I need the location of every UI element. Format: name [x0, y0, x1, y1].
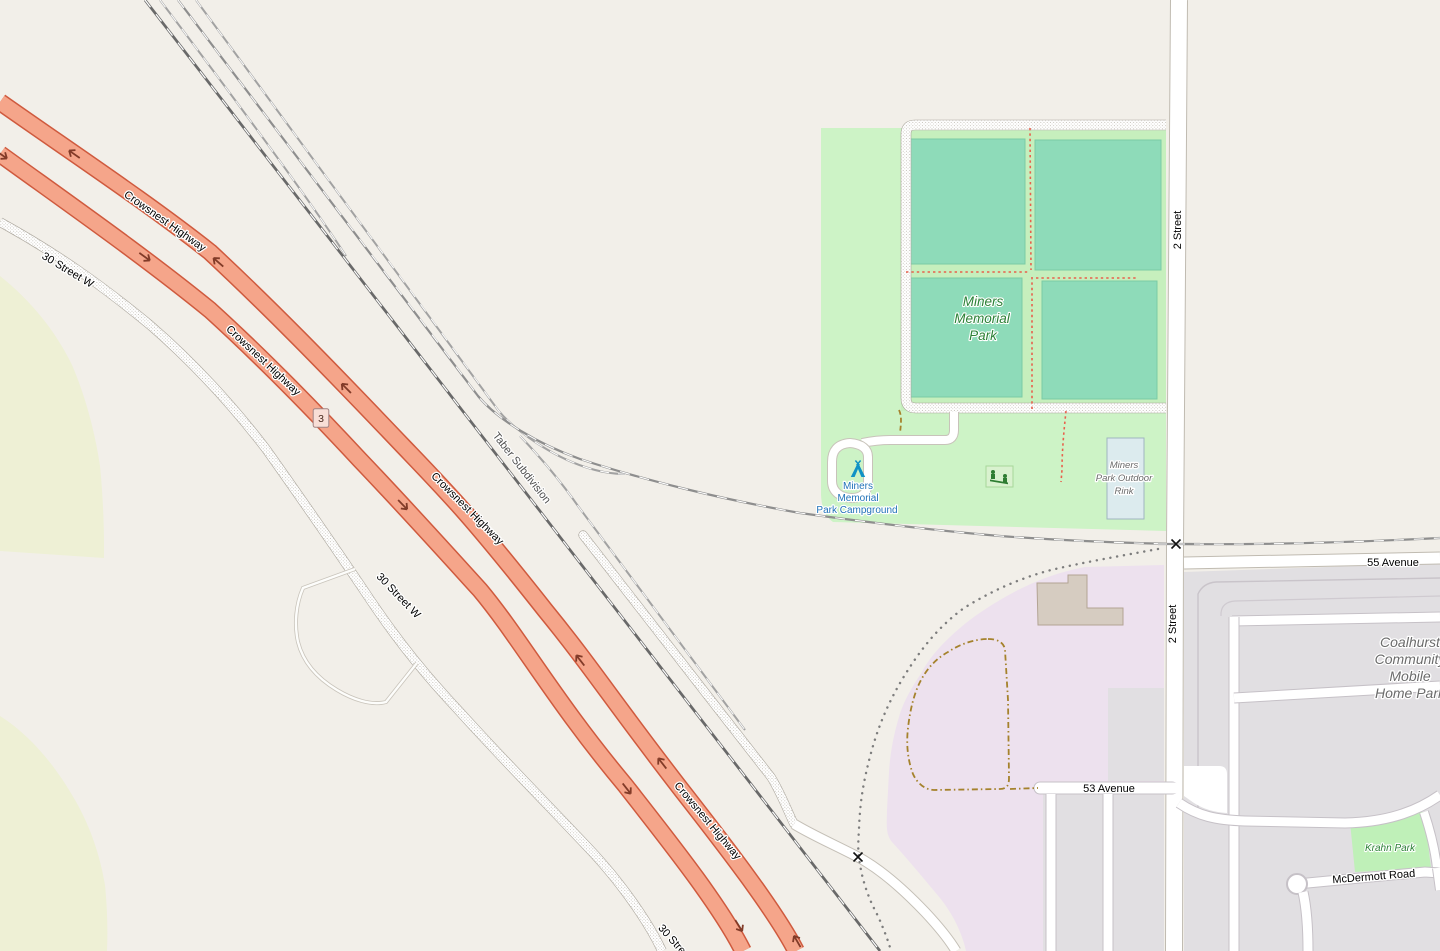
svg-text:Park: Park: [969, 328, 998, 343]
svg-text:Rink: Rink: [1114, 486, 1134, 497]
svg-text:55 Avenue: 55 Avenue: [1367, 557, 1419, 569]
svg-text:Krahn Park: Krahn Park: [1365, 843, 1416, 854]
svg-text:Miners: Miners: [963, 294, 1004, 309]
svg-text:Memorial: Memorial: [954, 311, 1011, 326]
svg-text:Park Campground: Park Campground: [816, 505, 897, 516]
svg-text:2 Street: 2 Street: [1172, 211, 1184, 250]
svg-text:2 Street: 2 Street: [1167, 605, 1179, 644]
svg-text:Community: Community: [1375, 651, 1440, 667]
svg-text:Home Park: Home Park: [1375, 685, 1440, 701]
svg-text:Miners: Miners: [843, 481, 873, 492]
svg-text:Coalhurst: Coalhurst: [1380, 634, 1440, 650]
svg-text:Park Outdoor: Park Outdoor: [1096, 473, 1153, 484]
svg-text:Mobile: Mobile: [1389, 668, 1430, 684]
svg-text:Miners: Miners: [1110, 460, 1139, 471]
svg-text:Memorial: Memorial: [837, 493, 878, 504]
svg-text:3: 3: [318, 413, 324, 425]
svg-text:53 Avenue: 53 Avenue: [1083, 783, 1135, 795]
